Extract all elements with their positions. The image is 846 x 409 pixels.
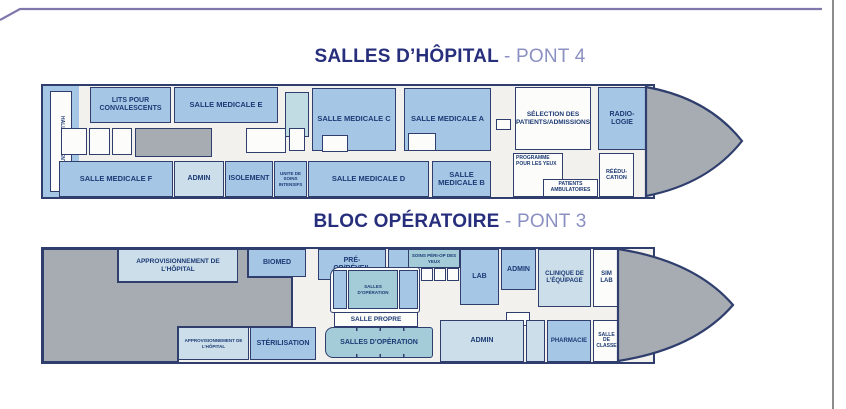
room-salle-medicale-e: SALLE MEDICALE E — [174, 87, 278, 123]
room-corridor-cabin — [61, 128, 87, 155]
deck4-plan: HALL DES PATIENTS LITS POUR CONVALESCENT… — [41, 84, 655, 199]
room-salle-medicale-b: SALLE MEDICALE B — [432, 161, 491, 197]
room-approvisionnement-hopital: APPROVISIONNEMENT DE L’HÔPITAL — [118, 249, 238, 282]
room-vestibule — [496, 119, 511, 130]
room-sterilisation: STÉRILISATION — [250, 327, 316, 360]
room-admin-bas: ADMIN — [440, 320, 524, 362]
room-salle-propre: SALLE PROPRE — [334, 312, 418, 327]
room-eye-bay — [434, 268, 446, 281]
room-admin-deck4: ADMIN — [174, 161, 224, 197]
deck4-bow — [600, 84, 746, 199]
room-corridor-cabin — [89, 128, 110, 155]
room-corridor-cabin — [112, 128, 132, 155]
deck3-plan: APPROVISIONNEMENT DE L’HÔPITAL BIOMED PR… — [41, 247, 655, 364]
deck3-title-suffix: - PONT 3 — [505, 211, 587, 232]
room-admin-haut: ADMIN — [501, 249, 536, 290]
room-soins-peri-op-yeux: SOINS PÉRI-OP DES YEUX — [408, 249, 460, 268]
deck4-title-suffix: - PONT 4 — [504, 46, 586, 67]
room-salles-operation-petit: SALLES D’OPÉRATION — [348, 270, 398, 309]
room-isolement: ISOLEMENT — [225, 161, 273, 197]
room-service-space — [135, 128, 212, 157]
room-label: SALLES D’OPÉRATION — [340, 339, 418, 347]
room-divider-ticks — [334, 327, 424, 331]
room-biomed: BIOMED — [248, 249, 306, 277]
room-salle-medicale-f: SALLE MEDICALE F — [59, 161, 173, 197]
room-alcove — [408, 133, 436, 151]
deck3-title-main: BLOC OPÉRATOIRE — [314, 211, 500, 232]
room-lits-pour-convalescents: LITS POUR CONVALESCENTS — [90, 87, 171, 123]
room-selection-patients-admissions: SÉLECTION DES PATIENTS/ADMISSIONS — [515, 87, 591, 150]
room-corridor-cabin — [322, 135, 348, 152]
deck-plan-page: SALLES D’HÔPITAL - PONT 4 HALL DES PATIE… — [0, 0, 846, 409]
room-patients-ambulatoires: PATIENTS AMBULATOIRES — [543, 179, 598, 197]
room-divider-ticks — [334, 354, 424, 358]
deck4-title-main: SALLES D’HÔPITAL — [314, 46, 498, 67]
room-or-annex — [399, 270, 418, 309]
room-eye-bay — [447, 268, 459, 281]
room-corridor-cabin — [289, 128, 305, 151]
room-approvisionnement-petit: APPROVISIONNEMENT DE L’HÔPITAL — [178, 327, 249, 360]
room-salle-medicale-d: SALLE MEDICALE D — [308, 161, 429, 197]
deck3-title: BLOC OPÉRATOIRE - PONT 3 — [60, 211, 840, 233]
page-frame-top-line — [0, 0, 846, 26]
deck4-title: SALLES D’HÔPITAL - PONT 4 — [60, 46, 840, 68]
room-unlabeled-pale — [526, 320, 545, 362]
room-unite-soins-intensifs: UNITE DE SOINS INTENSIFS — [274, 161, 307, 197]
room-lab: LAB — [460, 249, 499, 305]
room-salles-operation: SALLES D’OPÉRATION — [325, 327, 433, 358]
deck3-bow — [600, 247, 746, 364]
room-clinique-equipage: CLINIQUE DE L’ÉQUIPAGE — [538, 249, 591, 307]
room-or-suite: SALLES D’OPÉRATION — [330, 267, 420, 313]
room-pharmacie: PHARMACIE — [547, 320, 591, 362]
room-or-annex — [333, 270, 347, 309]
room-eye-bay — [421, 268, 433, 281]
room-corridor-cabin — [246, 128, 286, 153]
